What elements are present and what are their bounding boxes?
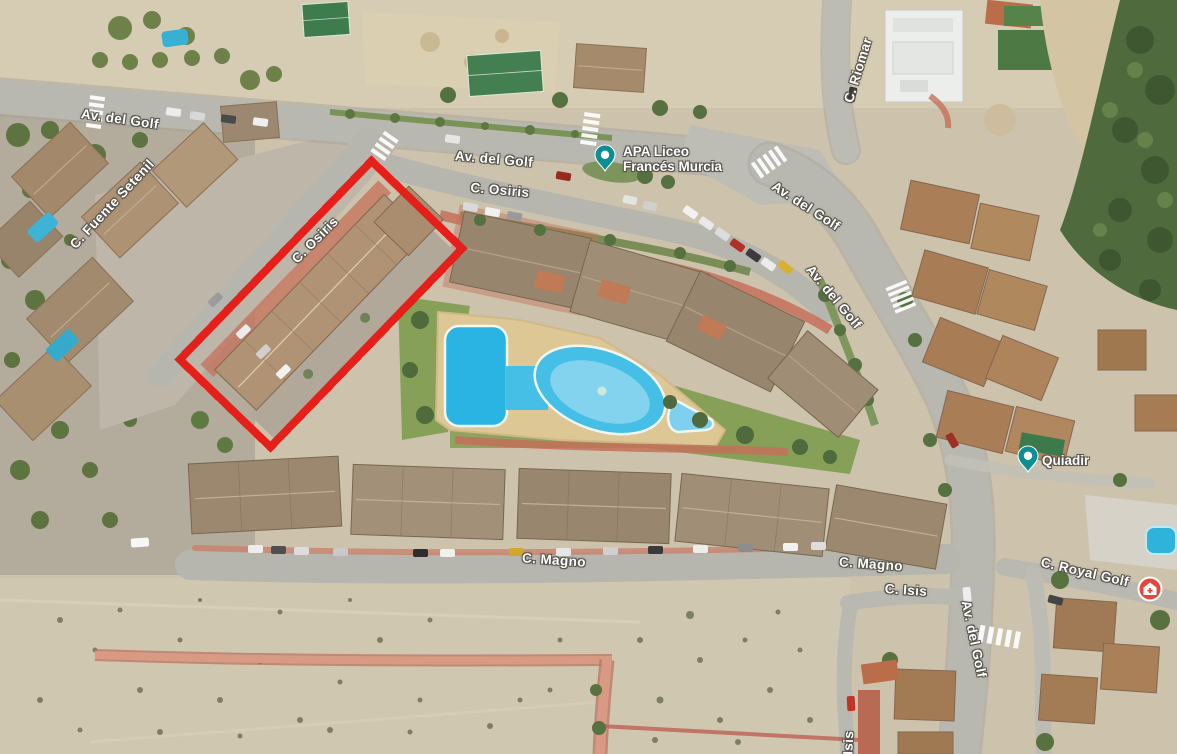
poi-label-apa-liceo[interactable]: APA Liceo Francés Murcia: [623, 144, 722, 174]
poi-label-line1: APA Liceo: [623, 144, 722, 159]
satellite-map[interactable]: Av. del Golf Av. del Golf C. Osiris C. O…: [0, 0, 1177, 754]
map-pin-icon[interactable]: [594, 144, 616, 172]
home-cross-icon[interactable]: [1137, 576, 1163, 602]
satellite-imagery: [0, 0, 1177, 754]
poi-label-quiadir[interactable]: Quiadir: [1042, 453, 1089, 468]
map-pin-icon[interactable]: [1017, 445, 1039, 473]
poi-label-line1: Quiadir: [1042, 453, 1089, 468]
poi-label-line2: Francés Murcia: [623, 159, 722, 174]
